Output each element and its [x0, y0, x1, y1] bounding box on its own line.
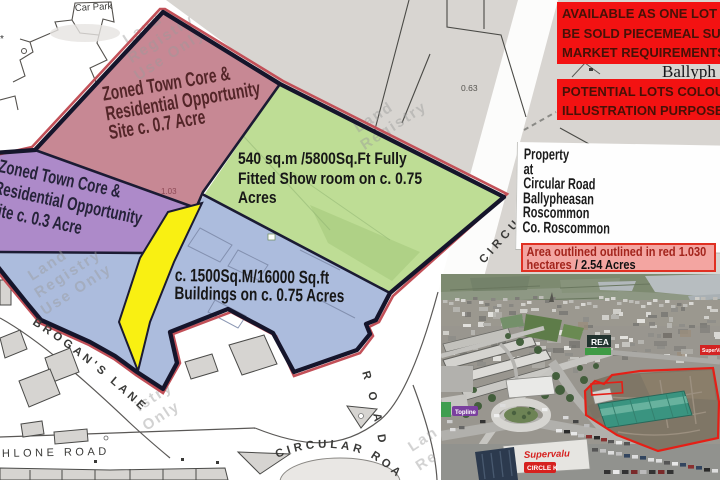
svg-text:Supervalu: Supervalu	[524, 448, 570, 461]
svg-text:0.63: 0.63	[461, 83, 478, 93]
svg-text:*: *	[0, 34, 4, 45]
svg-text:Car Park: Car Park	[75, 1, 113, 14]
svg-text:HLONE ROAD: HLONE ROAD	[2, 446, 110, 460]
svg-text:SuperValu: SuperValu	[702, 348, 720, 354]
svg-text:Topline: Topline	[455, 410, 477, 416]
svg-text:1.03: 1.03	[161, 187, 177, 196]
svg-text:REA: REA	[591, 337, 609, 347]
svg-text:CIRCLE K: CIRCLE K	[527, 465, 558, 472]
